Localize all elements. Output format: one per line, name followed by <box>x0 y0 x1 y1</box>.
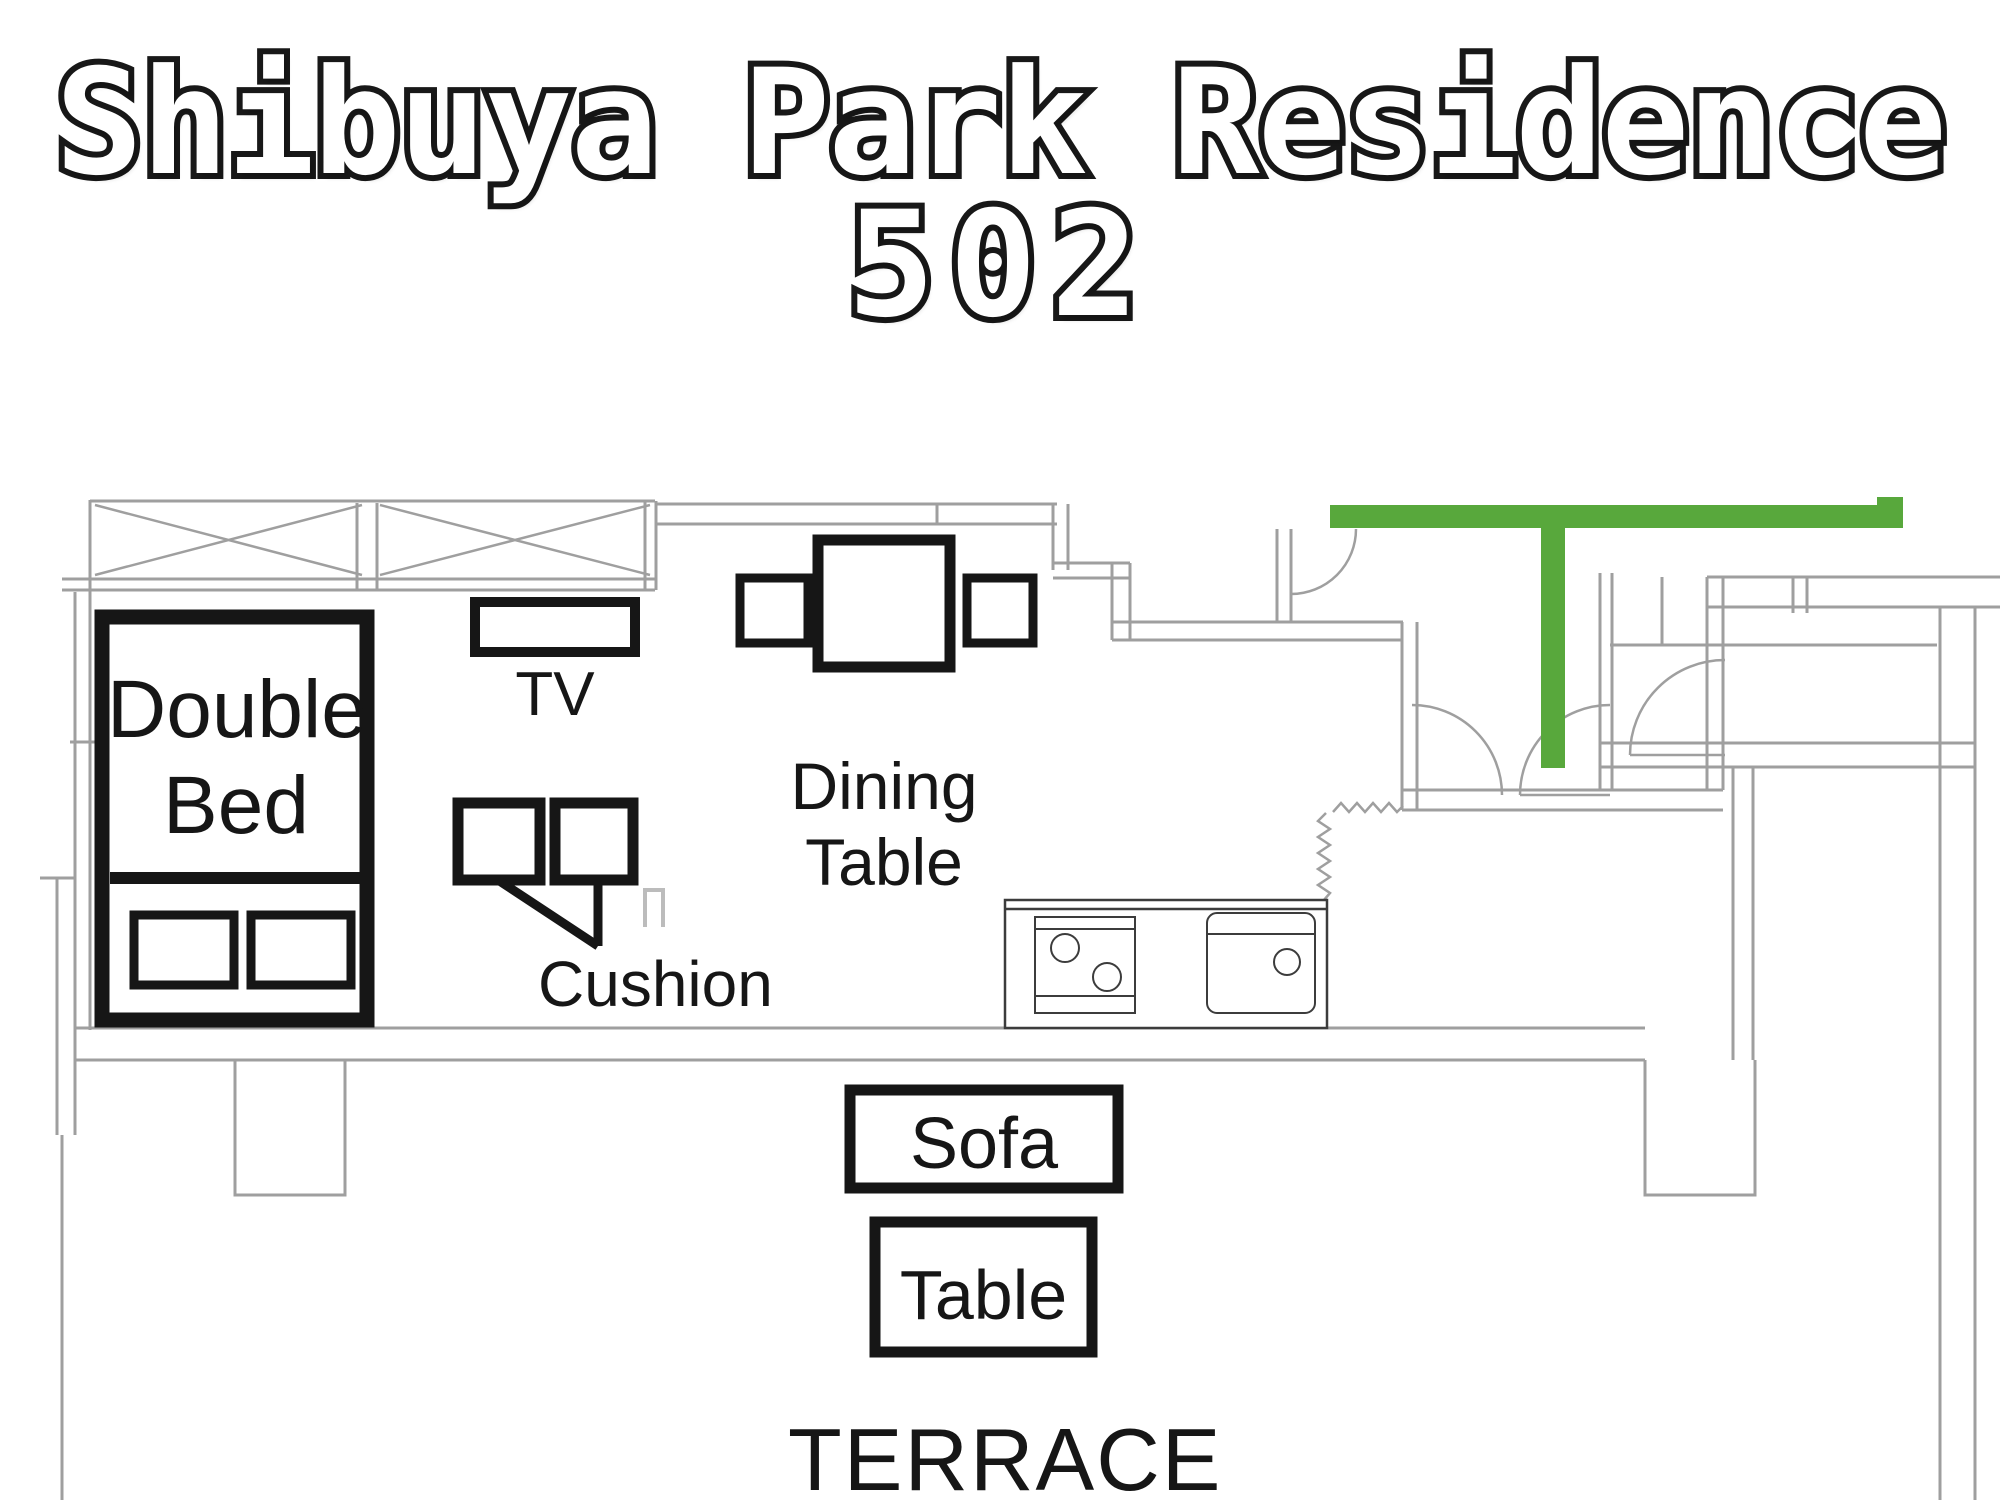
dining-table-label-line2: Table <box>764 824 1004 900</box>
table-label: Table <box>875 1260 1092 1330</box>
dining-chair <box>740 578 808 643</box>
cushion-square <box>458 803 540 880</box>
entrance-highlight-stem <box>1541 528 1565 768</box>
cushion-label: Cushion <box>538 952 772 1016</box>
double-bed-label: Double Bed <box>107 662 365 854</box>
tv-stand <box>475 602 635 652</box>
cushion-pointer <box>498 878 598 946</box>
entrance-highlight-bar <box>1330 505 1903 528</box>
bed-pillow <box>251 915 351 985</box>
small-wall-mark <box>645 890 663 927</box>
floor-plan-page: Shibuya Park Residence 502 Double Bed TV… <box>0 0 2000 1500</box>
double-bed-label-line1: Double <box>107 662 365 758</box>
page-title: Shibuya Park Residence <box>0 50 2000 196</box>
stove <box>1035 917 1135 1013</box>
terrace-label: TERRACE <box>788 1416 1188 1500</box>
bracket-mark <box>645 890 663 927</box>
closet-door-x-marks <box>95 505 650 575</box>
kitchen-group <box>1005 900 1327 1028</box>
stove-burner-icon <box>1051 934 1079 962</box>
dining-table-label: Dining Table <box>764 748 1004 900</box>
bed-pillow <box>134 915 234 985</box>
wall-break-zigzag <box>1318 803 1403 900</box>
cushion-square <box>555 803 633 880</box>
entrance-highlight-cap <box>1877 497 1903 528</box>
sofa-label: Sofa <box>850 1108 1118 1180</box>
door-swing-arcs <box>1291 529 1725 795</box>
dining-table-label-line1: Dining <box>764 748 1004 824</box>
double-bed-label-line2: Bed <box>107 758 365 854</box>
tv-label: TV <box>475 664 635 726</box>
dining-table <box>818 540 950 667</box>
sink-drain-icon <box>1274 949 1300 975</box>
stove-burner-icon <box>1093 963 1121 991</box>
unit-number: 502 <box>0 192 2000 338</box>
dining-chair <box>967 578 1033 643</box>
